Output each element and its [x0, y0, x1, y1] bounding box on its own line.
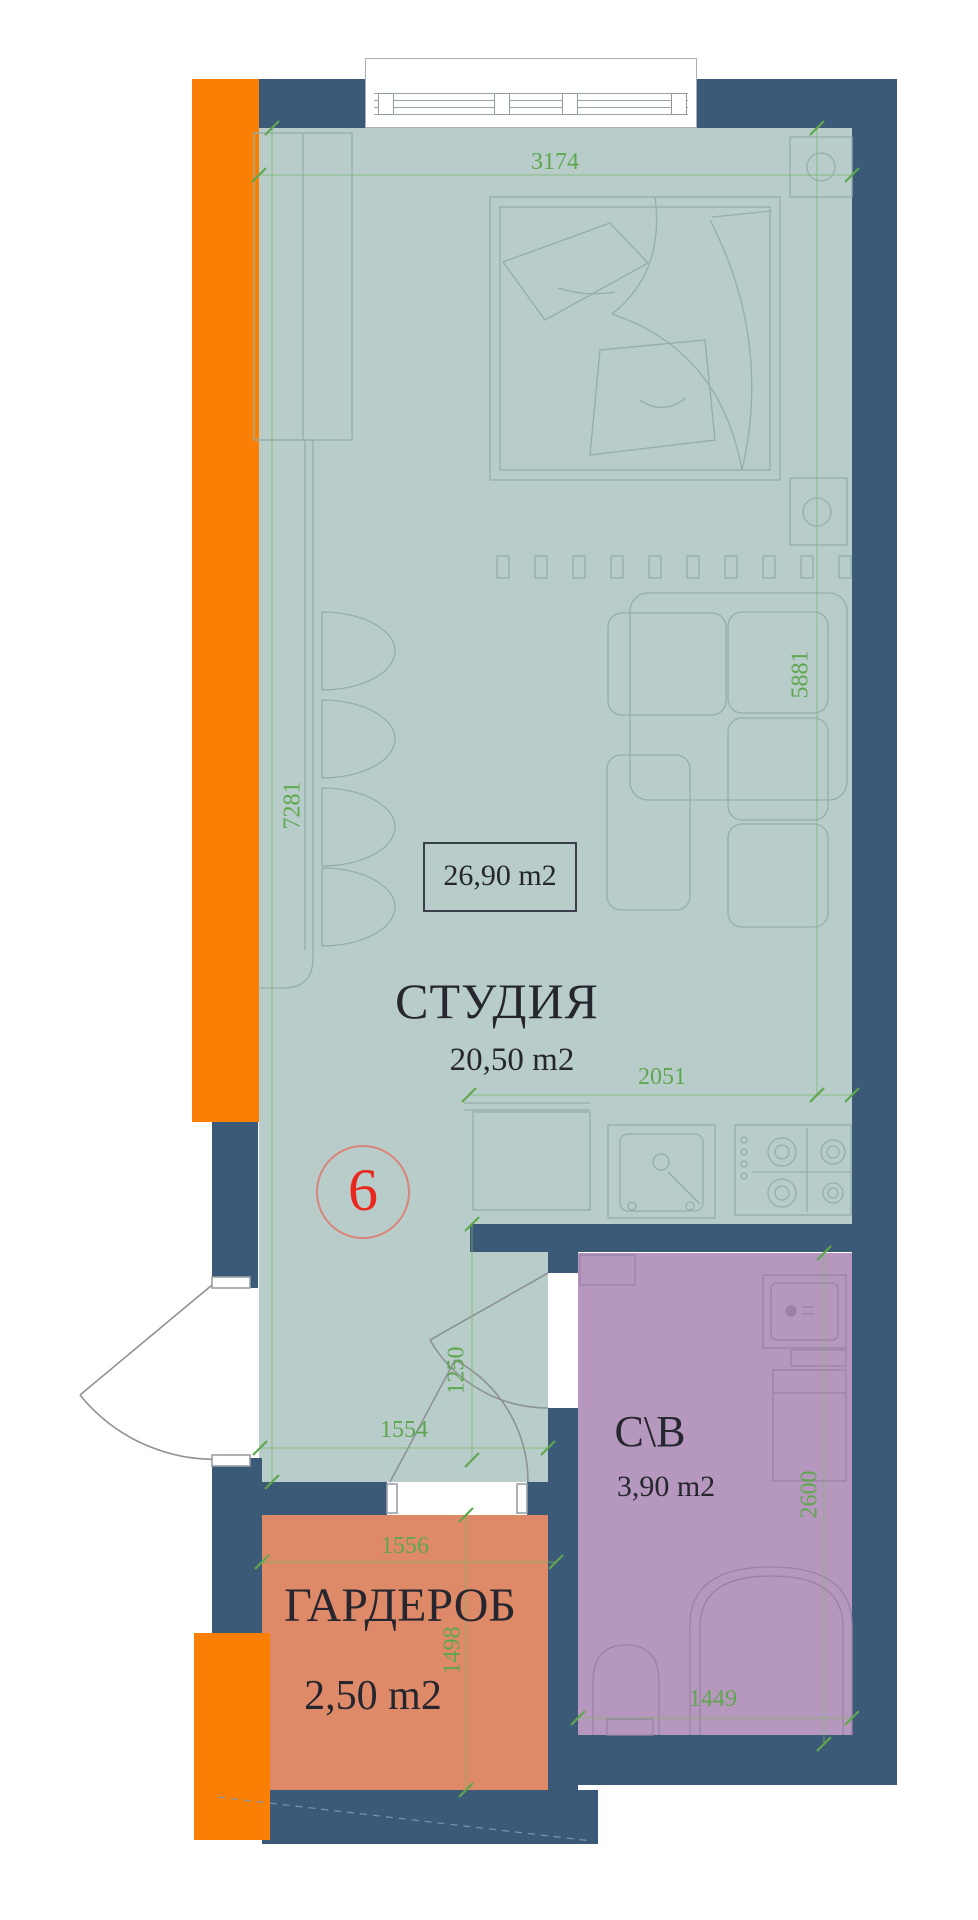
- dim-entry-zone-height: 1250: [444, 1331, 471, 1411]
- window-mullion: [671, 93, 687, 115]
- wall-wardrobe-bottom: [262, 1790, 598, 1844]
- window-glass-line: [374, 107, 688, 108]
- wall-top-right: [690, 79, 897, 128]
- bathroom-room-label: С\В: [580, 1406, 720, 1457]
- wall-right: [852, 128, 897, 1785]
- wall-bathroom-left: [548, 1408, 578, 1790]
- window-mullion: [494, 93, 510, 115]
- wall-bathroom-door-jamb: [548, 1252, 578, 1273]
- dim-wardrobe-width: 1556: [365, 1533, 445, 1560]
- window-mullion: [562, 93, 578, 115]
- dim-studio-height-right: 5881: [788, 635, 815, 715]
- wall-studio-bottom-right: [527, 1482, 548, 1515]
- window-mullion: [378, 93, 394, 115]
- window: [365, 58, 697, 128]
- dim-wardrobe-height: 1498: [440, 1611, 467, 1691]
- wall-top-left: [259, 79, 373, 128]
- wall-bathroom-bottom: [548, 1735, 897, 1785]
- studio-room-label: СТУДИЯ: [337, 972, 657, 1030]
- dim-bathroom-width: 1449: [673, 1686, 753, 1713]
- bathroom-area-label: 3,90 m2: [586, 1470, 746, 1504]
- dim-bathroom-height: 2600: [797, 1455, 824, 1535]
- window-glass-line: [374, 93, 688, 94]
- dim-kitchen-width: 2051: [622, 1064, 702, 1091]
- dim-studio-width-top: 3174: [515, 149, 595, 176]
- wall-left-upper: [212, 1122, 258, 1288]
- facade-strip-bottom: [194, 1633, 270, 1840]
- wall-studio-bottom-left: [259, 1482, 387, 1515]
- facade-strip-top: [192, 79, 259, 1122]
- wall-kitchen-bathroom: [470, 1224, 852, 1252]
- dim-entry-zone-width: 1554: [364, 1417, 444, 1444]
- total-area-box: 26,90 m2: [423, 842, 577, 912]
- window-glass-line: [374, 100, 688, 101]
- floor-plan: СТУДИЯ 20,50 m2 26,90 m2 ГАРДЕРОБ 2,50 m…: [0, 0, 978, 1920]
- entry-door: [80, 1277, 250, 1466]
- wardrobe-room-label: ГАРДЕРОБ: [250, 1578, 550, 1633]
- window-glass-line: [374, 114, 688, 115]
- dim-studio-height-left: 7281: [280, 766, 307, 846]
- unit-number-badge: 6: [316, 1145, 410, 1239]
